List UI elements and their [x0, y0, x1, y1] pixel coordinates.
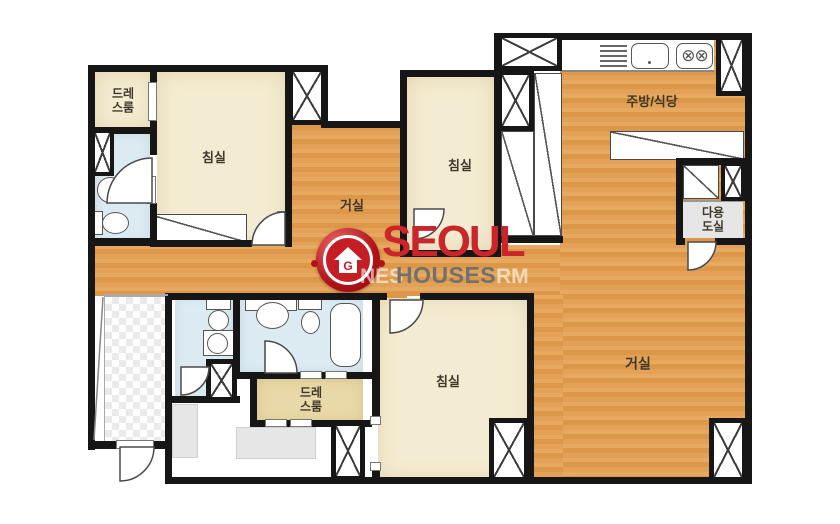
room-label-hall: 거실	[340, 198, 364, 214]
wall	[676, 238, 685, 245]
wall	[150, 203, 157, 242]
shaft-xbox	[206, 359, 237, 402]
dishrack-icon	[600, 60, 627, 62]
bathtub-icon	[330, 303, 361, 367]
shaft-xbox	[288, 67, 326, 125]
wardrobe-right-panel	[534, 73, 562, 236]
wall	[372, 470, 380, 484]
room-label-bedroom-n: 침실	[448, 158, 472, 174]
room-label-kitchen: 주방/식당	[626, 94, 677, 110]
wall	[150, 240, 252, 247]
door-leaf	[147, 176, 156, 204]
wall	[250, 372, 257, 427]
shaft-xbox	[721, 162, 745, 201]
shelf-icon	[120, 180, 128, 200]
toilet-tank-icon	[298, 299, 322, 310]
wall	[150, 134, 157, 155]
sliding-door-mark	[265, 419, 287, 427]
dishrack-icon	[600, 55, 627, 57]
watermark-fragment-right: RM	[496, 266, 529, 287]
shaft-xbox	[91, 129, 114, 176]
sink-icon	[207, 333, 228, 354]
entry-diagonal-line	[94, 297, 103, 440]
wall	[321, 121, 407, 128]
room-label-bedroom-s: 침실	[436, 374, 460, 390]
wall	[88, 238, 157, 246]
shaft-xbox	[716, 35, 747, 96]
door-arc	[120, 447, 154, 481]
toilet-tank-icon	[206, 299, 231, 310]
svg-text:G: G	[343, 259, 352, 273]
logo-title: SEOUL	[382, 220, 524, 264]
room-label-living: 거실	[625, 356, 651, 373]
wall	[715, 238, 748, 245]
dishrack-icon	[600, 50, 627, 52]
room-label-utility: 다용도실	[702, 206, 724, 235]
pocket-door	[148, 82, 157, 121]
opening-jamb	[370, 416, 381, 425]
wall	[400, 70, 501, 77]
cabinet-entry-side	[172, 404, 198, 458]
dishrack-icon	[600, 65, 627, 67]
seoul-houses-logo: G NES SEOUL HOUSES RM	[300, 224, 560, 300]
kitchen-sink-icon	[631, 43, 669, 69]
wall	[150, 65, 157, 83]
floorplan-canvas: ⊗⊗	[0, 0, 840, 524]
closet-bedroom-nw	[150, 214, 247, 243]
wall	[372, 293, 380, 418]
shaft-xbox	[497, 70, 534, 131]
living-floor-extension	[531, 295, 563, 480]
logo-subtitle: HOUSES	[396, 264, 496, 287]
stove-icon: ⊗⊗	[676, 43, 713, 69]
logo-dot-left	[311, 260, 318, 267]
utility-shelf	[683, 165, 719, 199]
opening-jamb	[370, 462, 381, 471]
room-label-bedroom-nw: 침실	[202, 150, 226, 166]
shaft-xbox	[331, 421, 365, 481]
sink-drain-dot	[648, 61, 651, 64]
shaft-xbox	[489, 418, 529, 482]
toilet-bowl-icon	[102, 212, 129, 234]
wall	[88, 65, 95, 450]
cabinet-bottom-room	[236, 427, 316, 459]
wall	[676, 158, 683, 245]
sliding-door-mark	[300, 371, 322, 379]
kitchen-bar-counter	[610, 131, 744, 160]
entry-threshold-line	[104, 294, 168, 296]
door-leaf	[116, 440, 154, 449]
dishrack-icon	[600, 45, 627, 47]
sink-icon	[256, 302, 289, 329]
sliding-door-mark	[325, 371, 347, 379]
toilet-bowl-icon	[208, 310, 229, 331]
door-leaf	[277, 211, 285, 244]
toilet-bowl-icon	[301, 311, 320, 334]
wall	[745, 33, 752, 484]
room-label-dressroom-bottom: 드레스룸	[300, 386, 322, 415]
shaft-xbox	[497, 33, 562, 71]
wall	[88, 441, 118, 449]
wall	[165, 293, 172, 484]
room-label-dressroom-top: 드레스룸	[112, 87, 134, 116]
shaft-xbox	[709, 418, 747, 482]
wall	[165, 477, 752, 484]
sliding-door-mark	[290, 419, 312, 427]
entry-tile	[104, 296, 170, 445]
